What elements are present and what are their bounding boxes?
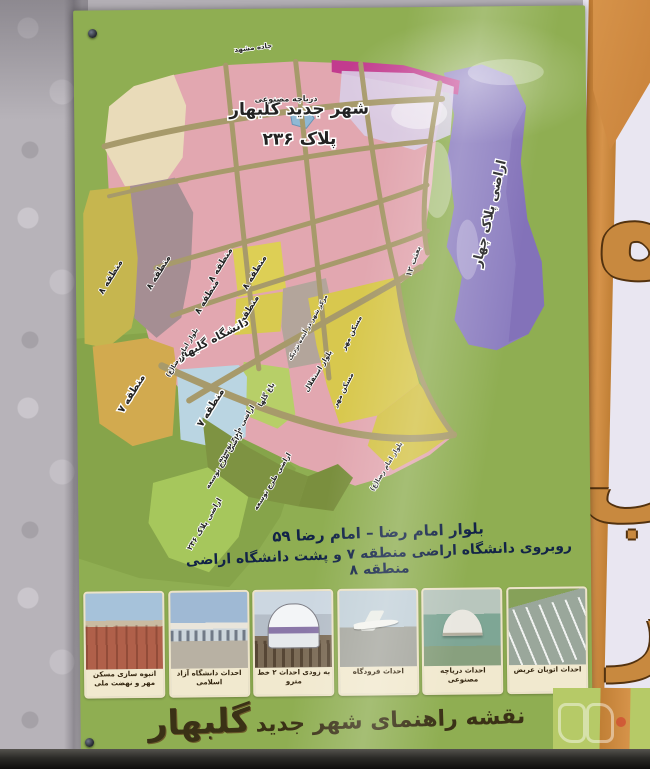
photo-card-metro: به زودی احداث ۲ خط مترو (252, 589, 334, 697)
map-title-line2: پلاک ۲۳۶ (262, 129, 336, 150)
poster-title-prefix: نقشه راهنمای شهر جدید (255, 704, 525, 737)
table-edge-shadow (0, 749, 650, 769)
photo-card-azad-university: احداث دانشگاه آزاد اسلامی (168, 590, 250, 698)
side-poster-letter-fragment: ب (583, 440, 650, 528)
photo-scene: ه ب ر (0, 0, 650, 769)
watermark-logo (556, 695, 646, 750)
golbahar-map-poster: شهر جدید گلبهار پلاک ۲۳۶ اراضی پلاک چهار… (73, 5, 593, 756)
map-area-development (298, 464, 353, 512)
photo-card-mehr-housing: انبوه سازی مسکن مهر و نهضت ملی (83, 591, 165, 699)
photo-caption: به زودی احداث ۲ خط مترو (255, 667, 332, 695)
label-lake: دریاچه مصنوعی (255, 94, 318, 104)
photo-card-highway: احداث اتوبان عریض (506, 586, 588, 694)
mehr-housing-photo (85, 593, 163, 670)
city-map: شهر جدید گلبهار پلاک ۲۳۶ اراضی پلاک چهار… (73, 13, 591, 588)
photo-strip: انبوه سازی مسکن مهر و نهضت ملی احداث دان… (83, 586, 588, 698)
push-pin-bottom (85, 738, 94, 747)
plane-shape (353, 618, 398, 630)
map-glare-spot (468, 59, 544, 86)
side-poster-letter-fragment: ه (595, 165, 650, 285)
highway-lanes-shape (508, 597, 586, 666)
photo-card-lake: احداث دریاچه مصنوعی (422, 587, 504, 695)
label-road-mashhad: جاده مشهد (234, 42, 273, 54)
shell-structure-shape (442, 609, 482, 635)
watermark-glyph (586, 703, 614, 743)
side-poster: ه ب ر (583, 0, 650, 769)
photo-card-airport: احداث فرودگاه (337, 588, 419, 696)
airport-photo (339, 590, 417, 667)
photo-caption: احداث دریاچه مصنوعی (424, 665, 501, 693)
artificial-lake-photo (424, 589, 502, 666)
poster-title: نقشه راهنمای شهر جدید گلبهار (80, 690, 593, 746)
highway-photo (508, 588, 586, 665)
photo-caption: احداث دانشگاه آزاد اسلامی (171, 668, 248, 696)
metro-photo (254, 591, 332, 668)
side-poster-letter-fragment: ر (611, 565, 650, 661)
train-shape (267, 603, 320, 648)
poster-title-city: گلبهار (147, 701, 251, 744)
push-pin-top (88, 29, 97, 38)
photo-caption: انبوه سازی مسکن مهر و نهضت ملی (86, 669, 163, 697)
photo-caption: احداث فرودگاه (340, 666, 417, 694)
watermark-red-dot (616, 717, 626, 727)
watermark-glyph (558, 703, 586, 743)
azad-university-photo (170, 592, 248, 669)
